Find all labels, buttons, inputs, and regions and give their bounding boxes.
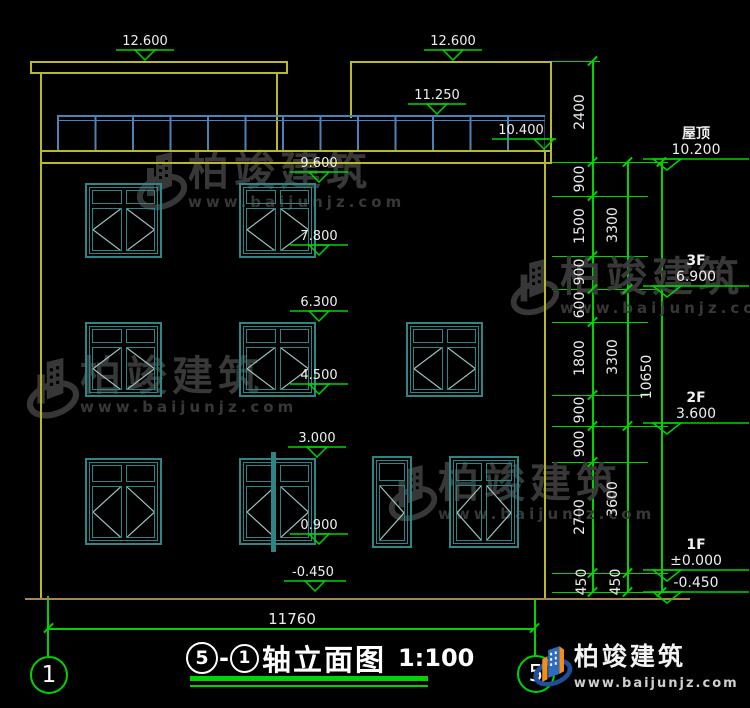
elevation-symbol-icon: [288, 446, 346, 458]
axis-bubble-1: 1: [30, 656, 68, 694]
elevation-symbol-icon: [290, 533, 348, 545]
bulkhead-left-line: [350, 61, 352, 118]
title-axis-circle-1: 1: [230, 644, 259, 673]
elevation-marker-1f-window-bottom: 0.900: [290, 519, 348, 545]
title-scale: 1:100: [398, 644, 474, 672]
elevation-marker-parapet: 10.400: [492, 124, 550, 150]
elevation-marker-railing: 11.250: [408, 89, 466, 115]
elevation-symbol-icon: [643, 422, 749, 435]
elevation-marker-1f-window-top: 3.000: [288, 432, 346, 458]
elevation-marker-ground-left: -0.450: [284, 566, 342, 592]
window-1f-narrow: [372, 456, 412, 548]
elevation-marker-3f-window-bottom: 7.800: [290, 230, 348, 256]
rain-pipe: [271, 452, 276, 552]
roof-railing: [57, 115, 545, 152]
watermark-logo-icon: [510, 256, 560, 318]
window-2f-3: [406, 322, 483, 397]
dim-label: 2700: [572, 485, 590, 549]
window-3f-1: [85, 183, 162, 258]
title-underline-thick: [190, 676, 428, 681]
roof-parapet-line: [40, 150, 552, 152]
dim-label: 3300: [605, 193, 623, 257]
dim-label: 450: [574, 550, 592, 614]
dim-label-total-width: 11760: [252, 610, 332, 628]
title-text: 轴立面图: [262, 637, 386, 679]
elevation-symbol-icon: [290, 244, 348, 256]
brand-logo: 柏竣建筑 www.baijunjz.com: [533, 630, 750, 702]
brand-text: 柏竣建筑: [574, 642, 686, 671]
dimension-chain-total: [661, 162, 663, 592]
elevation-symbol-icon: [290, 310, 348, 322]
title-dash: -: [219, 644, 229, 672]
dim-label: 450: [608, 550, 626, 614]
canopy-post-left: [40, 74, 42, 152]
left-wall-line: [40, 150, 42, 600]
elevation-symbol-icon: [116, 49, 174, 61]
floor-marker-2f: 2F 3.600: [643, 390, 749, 435]
title-axis-circle-5: 5: [186, 642, 218, 674]
elevation-symbol-icon: [290, 171, 348, 183]
drawing-title: 5 - 1 轴立面图 1:100: [186, 637, 474, 679]
elevation-symbol-icon: [643, 285, 749, 298]
extension-line: [552, 395, 648, 396]
elevation-marker-canopy-left: 12.600: [116, 35, 174, 61]
brand-logo-icon: [533, 630, 574, 702]
dim-label: 3300: [605, 325, 623, 389]
elevation-symbol-icon: [290, 383, 348, 395]
railing-top-rail: [57, 120, 545, 121]
dim-label: 2400: [572, 80, 590, 144]
dim-label: 3600: [605, 467, 623, 531]
elevation-drawing-canvas: 柏竣建筑 www.baijunjz.com 柏竣建筑 www.baijunjz.…: [0, 0, 750, 708]
elevation-symbol-icon: [492, 138, 556, 150]
brand-url: www.baijunjz.com: [574, 676, 739, 691]
left-canopy-slab: [30, 61, 288, 74]
extension-line: [552, 196, 648, 197]
window-1f-double: [449, 456, 519, 548]
elevation-symbol-icon: [643, 591, 749, 604]
elevation-marker-bulkhead: 12.600: [424, 35, 482, 61]
watermark-logo-icon: [26, 355, 80, 421]
watermark-url: www.baijunjz.com: [80, 397, 297, 417]
elevation-marker-3f-window-top: 9.600: [290, 157, 348, 183]
floor-marker-roof: 屋顶 10.200: [643, 126, 749, 171]
dimension-chain-outer: [627, 162, 629, 592]
floor-marker-basement: -0.450: [643, 575, 749, 604]
floor-marker-3f: 3F 6.900: [643, 253, 749, 298]
elevation-marker-2f-window-bottom: 4.500: [290, 369, 348, 395]
right-wall-line: [544, 150, 546, 600]
window-2f-1: [85, 322, 162, 397]
extension-line: [552, 322, 648, 323]
elevation-symbol-icon: [408, 103, 466, 115]
window-1f-1: [85, 458, 162, 545]
elevation-symbol-icon: [284, 580, 346, 592]
title-underline-thin: [190, 685, 428, 687]
elevation-symbol-icon: [643, 158, 749, 171]
elevation-symbol-icon: [424, 49, 482, 61]
dim-label: 900: [572, 412, 590, 476]
bulkhead-top-line: [350, 61, 552, 63]
width-dimension-line: [48, 628, 535, 630]
elevation-marker-2f-window-top: 6.300: [290, 296, 348, 322]
